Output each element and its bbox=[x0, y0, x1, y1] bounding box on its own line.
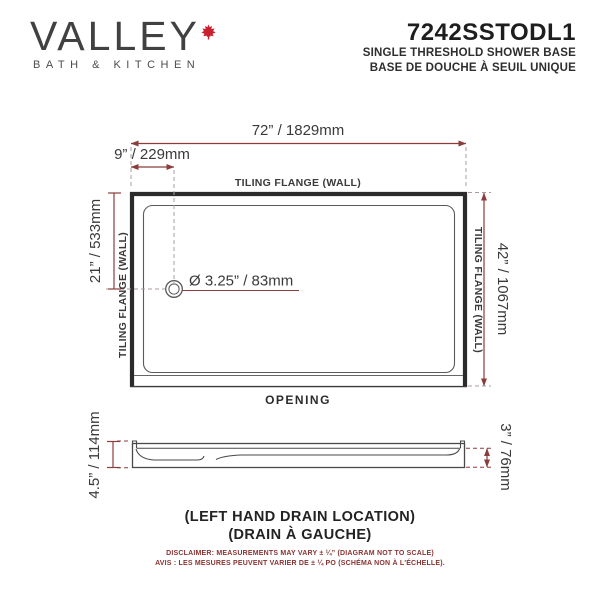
top-view: Ø 3.25” / 83mm 72” / 1829mm 9” / 229mm 2… bbox=[87, 122, 511, 407]
spec-sheet-page: VALLEY BATH & KITCHEN 7242SSTODL1 SINGLE… bbox=[0, 0, 600, 600]
flange-label-top: TILING FLANGE (WALL) bbox=[235, 177, 361, 189]
drain-inner-circle bbox=[169, 284, 179, 294]
disclaimer-fr: AVIS : LES MESURES PEUVENT VARIER DE ± ¼… bbox=[0, 560, 600, 567]
side-floor-drain-slope bbox=[136, 449, 204, 460]
drain-location-fr: (DRAIN À GAUCHE) bbox=[0, 527, 600, 543]
width-dimension-label: 72” / 1829mm bbox=[252, 122, 345, 139]
side-floor-line bbox=[216, 449, 460, 460]
side-view: 4.5” / 114mm 3” / 76mm bbox=[86, 411, 514, 498]
drain-diameter-label: Ø 3.25” / 83mm bbox=[189, 273, 293, 290]
drain-depth-label: 21” / 533mm bbox=[87, 199, 104, 283]
height-dimension-label: 42” / 1067mm bbox=[494, 243, 511, 336]
disclaimer-en: DISCLAIMER: MEASUREMENTS MAY VARY ± ¼” (… bbox=[0, 550, 600, 557]
side-height-left-label: 4.5” / 114mm bbox=[86, 411, 103, 498]
drain-offset-label: 9” / 229mm bbox=[114, 146, 190, 163]
flange-label-left: TILING FLANGE (WALL) bbox=[117, 232, 129, 358]
side-height-right-label: 3” / 76mm bbox=[497, 423, 514, 491]
opening-label: OPENING bbox=[265, 393, 331, 407]
drain-location-en: (LEFT HAND DRAIN LOCATION) bbox=[0, 509, 600, 525]
flange-label-right: TILING FLANGE (WALL) bbox=[472, 227, 484, 353]
